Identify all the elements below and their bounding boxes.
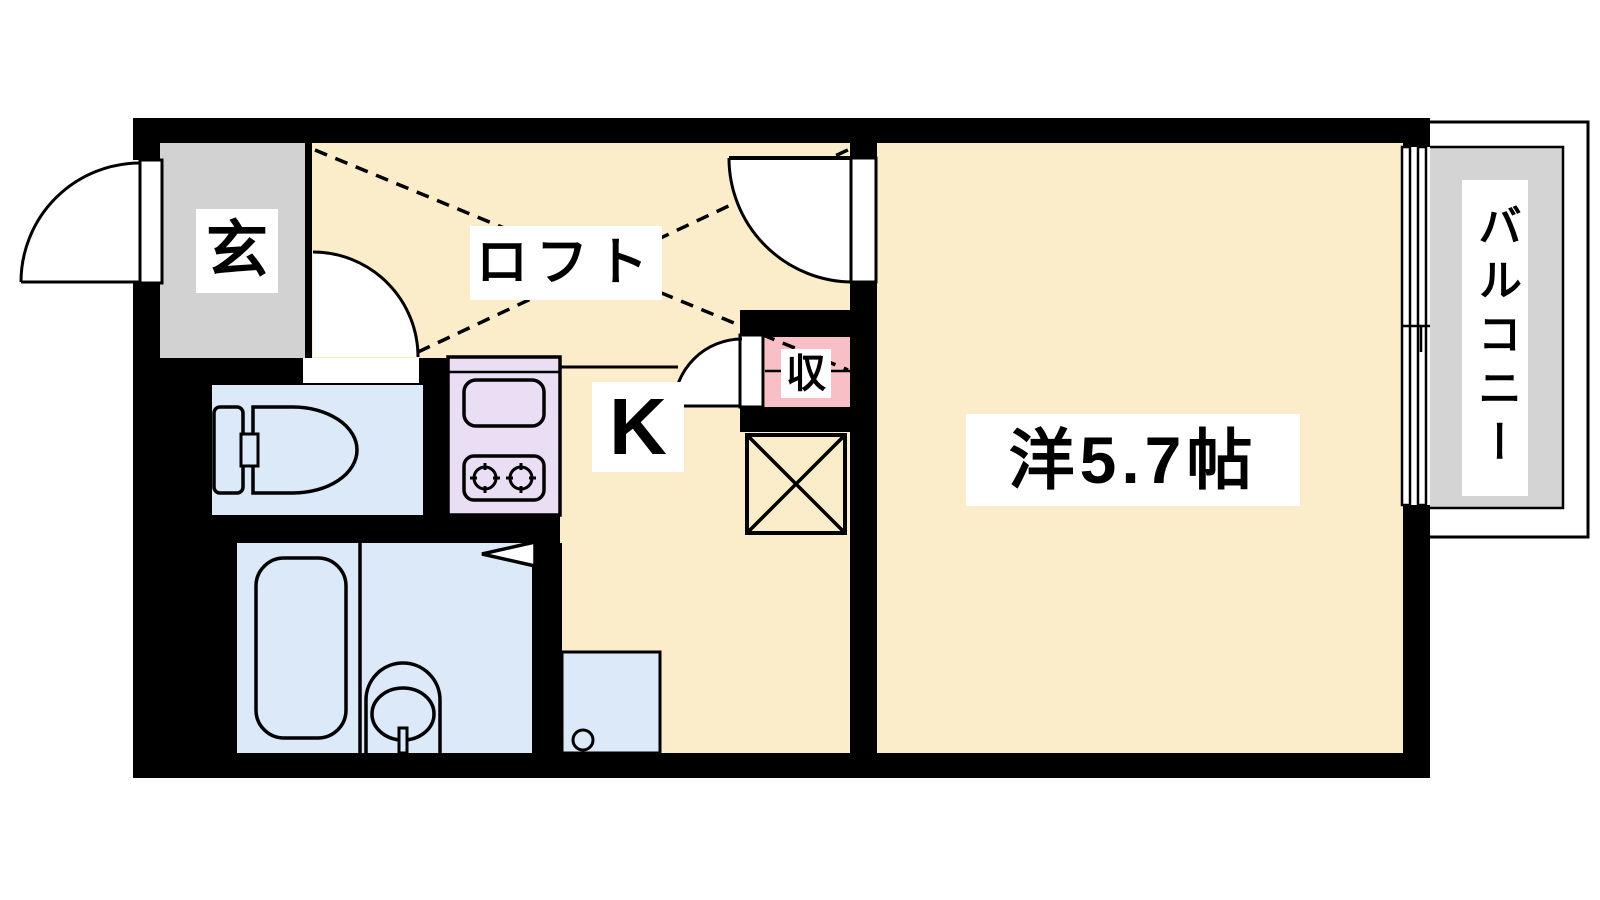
washing-machine-area <box>562 652 660 753</box>
balcony-label: バルコニー <box>1462 180 1528 496</box>
loft-label: ロフト <box>470 226 662 300</box>
wall-right-of-bath <box>532 543 562 753</box>
western-door-opening <box>851 158 876 282</box>
washbasin-drain <box>399 728 407 753</box>
toilet-seat-hinge <box>241 434 258 466</box>
closet-label: 収 <box>781 349 831 398</box>
wall-left-of-bath <box>160 543 237 753</box>
kitchen-unit <box>448 357 560 515</box>
hall-door-opening <box>303 358 419 383</box>
floor-plan-drawing <box>0 0 1600 900</box>
wall-below-stove <box>448 515 560 543</box>
western-room-label: 洋5.7帖 <box>966 414 1300 506</box>
front-door-leaf <box>140 160 162 283</box>
closet-door-leaf <box>740 335 763 407</box>
hall-door-leaf <box>305 143 312 358</box>
entrance-label: 玄 <box>196 209 278 293</box>
floor-plan-canvas: 玄 ロフト K 収 洋5.7帖 バルコニー <box>0 0 1600 900</box>
bathroom-floor <box>237 543 532 753</box>
kitchen-label: K <box>592 382 684 472</box>
